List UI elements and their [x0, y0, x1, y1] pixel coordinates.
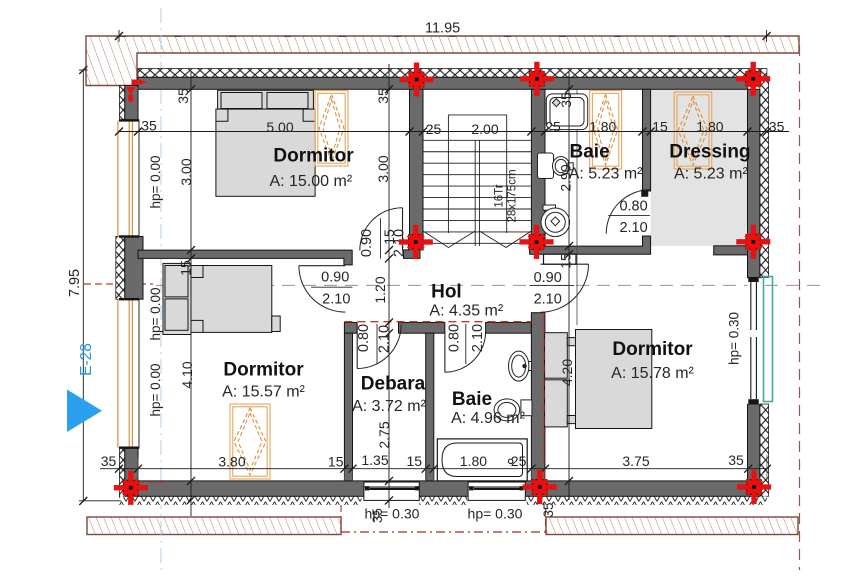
svg-text:1.80: 1.80 — [460, 453, 487, 469]
svg-text:35: 35 — [175, 88, 191, 104]
svg-text:15: 15 — [558, 253, 574, 269]
svg-text:11.95: 11.95 — [425, 21, 460, 37]
svg-text:Baie: Baie — [452, 389, 492, 410]
svg-text:2.10: 2.10 — [376, 325, 392, 353]
svg-text:4.20: 4.20 — [559, 359, 575, 386]
svg-text:Dormitor: Dormitor — [273, 146, 354, 167]
svg-text:Dormitor: Dormitor — [612, 339, 693, 360]
svg-text:28x175cm: 28x175cm — [507, 169, 519, 222]
svg-text:hp= 0.00: hp= 0.00 — [148, 156, 163, 209]
svg-text:2.10: 2.10 — [534, 292, 562, 308]
svg-text:3.00: 3.00 — [375, 155, 391, 182]
svg-text:35: 35 — [541, 502, 556, 517]
svg-text:15: 15 — [328, 454, 344, 470]
svg-text:A: 4.96 m²: A: 4.96 m² — [451, 410, 525, 427]
svg-text:0.90: 0.90 — [534, 270, 562, 286]
svg-text:2.10: 2.10 — [322, 292, 350, 308]
svg-text:A: 5.23 m²: A: 5.23 m² — [674, 165, 748, 182]
svg-text:A: 15.57 m²: A: 15.57 m² — [222, 384, 305, 401]
svg-text:5.00: 5.00 — [266, 119, 293, 135]
svg-text:Dormitor: Dormitor — [223, 360, 304, 381]
svg-text:Baie: Baie — [570, 142, 610, 163]
svg-text:35: 35 — [141, 118, 157, 134]
svg-text:A: 15.78 m²: A: 15.78 m² — [611, 365, 694, 382]
svg-text:35: 35 — [558, 92, 574, 108]
svg-text:Dressing: Dressing — [669, 142, 750, 163]
svg-text:35: 35 — [101, 453, 117, 469]
svg-text:35: 35 — [375, 88, 391, 104]
svg-text:4.10: 4.10 — [179, 361, 195, 388]
svg-text:hp= 0.00: hp= 0.00 — [148, 364, 163, 417]
svg-text:25: 25 — [511, 453, 527, 469]
svg-text:E-28: E-28 — [78, 343, 95, 376]
svg-text:Debara: Debara — [361, 374, 426, 395]
svg-text:0.90: 0.90 — [359, 229, 375, 257]
svg-text:A: 3.72 m²: A: 3.72 m² — [352, 398, 426, 415]
svg-text:2.75: 2.75 — [376, 421, 392, 448]
svg-text:3.75: 3.75 — [622, 453, 649, 469]
svg-text:35: 35 — [728, 452, 744, 468]
svg-text:0.80: 0.80 — [356, 324, 372, 352]
svg-text:25: 25 — [545, 119, 561, 135]
svg-text:2.00: 2.00 — [471, 121, 498, 137]
svg-text:1.80: 1.80 — [696, 119, 723, 135]
svg-text:1.20: 1.20 — [372, 276, 388, 303]
svg-text:15: 15 — [407, 453, 423, 469]
svg-text:3.80: 3.80 — [218, 454, 245, 470]
svg-text:15: 15 — [178, 260, 194, 276]
svg-text:A: 4.35 m²: A: 4.35 m² — [429, 303, 503, 320]
svg-text:1.80: 1.80 — [589, 119, 616, 135]
svg-text:2.10: 2.10 — [619, 220, 647, 236]
svg-text:16Tr: 16Tr — [494, 184, 506, 207]
svg-text:A: 15.00 m²: A: 15.00 m² — [269, 173, 352, 190]
svg-text:0.90: 0.90 — [321, 270, 349, 286]
svg-text:0.80: 0.80 — [447, 324, 463, 352]
svg-text:0.80: 0.80 — [619, 199, 647, 215]
svg-text:35: 35 — [370, 508, 385, 523]
svg-text:A: 5.23 m²: A: 5.23 m² — [569, 165, 643, 182]
svg-text:15: 15 — [652, 119, 668, 135]
svg-text:25: 25 — [426, 121, 442, 137]
svg-text:1.35: 1.35 — [361, 452, 388, 468]
svg-text:hp= 0.00: hp= 0.00 — [148, 288, 163, 341]
svg-text:7.95: 7.95 — [67, 269, 83, 297]
svg-text:Hol: Hol — [431, 282, 462, 303]
svg-text:3.00: 3.00 — [178, 158, 194, 185]
svg-text:35: 35 — [769, 119, 785, 135]
svg-text:hp= 0.30: hp= 0.30 — [468, 506, 523, 522]
svg-text:hp= 0.30: hp= 0.30 — [727, 312, 742, 365]
svg-text:2.10: 2.10 — [470, 324, 486, 352]
